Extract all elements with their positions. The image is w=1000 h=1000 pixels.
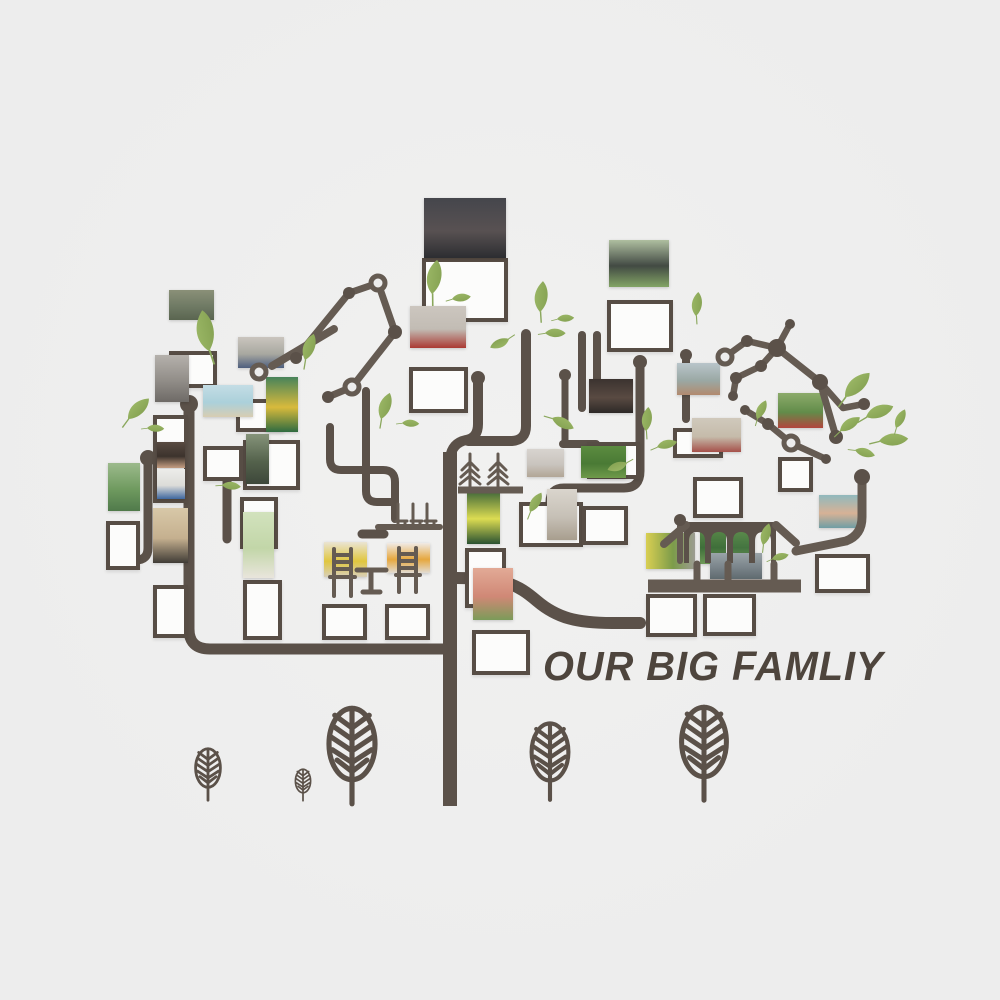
sapling-tree-icon [682,707,727,800]
sapling-tree-icon [196,749,221,800]
branch-node-dot [854,469,870,485]
branch-node-dot [785,319,795,329]
branch-node-dot [821,454,831,464]
leaf-icon [551,309,574,329]
branch-node-dot [741,335,753,347]
leaf-icon [141,418,164,439]
pavilion-branch-right [796,483,862,551]
mini-chairs [396,504,436,526]
branch-node-ring [371,276,385,290]
branch-node-dot [388,325,402,339]
leaf-icon [185,310,230,365]
branch-node-dot [812,374,828,390]
leaf-icon [538,321,566,346]
family-tree-wall-art: OUR BIG FAMLIY [0,0,1000,1000]
branch-node-dot [674,514,686,526]
leaf-icon [869,424,908,458]
branch-node-ring [345,380,359,394]
leaf-icon [682,292,712,325]
sapling-tree-icon [295,769,310,801]
table-silhouette [357,570,386,592]
leaf-icon [651,435,678,456]
chair-silhouette-2 [396,548,420,592]
leaf-icon [767,549,789,566]
constellation-left-b [328,283,395,397]
leaf-icon [632,407,662,440]
chair-silhouette-1 [330,549,355,596]
leaf-icon [413,259,457,306]
branch-node-dot [858,398,870,410]
branch-node-dot [343,287,355,299]
branch-node-dot [768,339,786,357]
leaf-icon [519,492,549,519]
branch-node-dot [829,430,843,444]
branch-node-dot [730,372,742,384]
leaf-icon [215,474,241,498]
branch-node-dot [290,352,302,364]
title-text: OUR BIG FAMLIY [543,643,884,690]
decor-overlay-layer [0,0,1000,1000]
twig-diagonal-left [272,329,334,366]
sapling-tree-icon [329,708,375,803]
branch-node-dot [740,405,750,415]
branch-node-ring [718,350,732,364]
branch-node-ring [252,365,266,379]
leaf-icon [885,409,913,435]
pine-tree-2 [488,454,508,487]
leaf-icon [544,406,574,439]
branch-node-dot [728,391,738,401]
sapling-tree-icon [532,723,569,799]
branch-node-dot [762,418,774,430]
leaf-icon [366,392,403,428]
branch-node-dot [322,391,334,403]
branch-node-ring [784,436,798,450]
leaf-icon [396,413,419,434]
leaf-icon [117,398,155,428]
pavilion-beam-right [776,525,796,543]
leaf-icon [522,281,561,323]
branch-node-dot [755,360,767,372]
leaf-icon [446,288,471,309]
pine-tree-1 [460,454,480,487]
leaf-icon [833,417,862,437]
leaf-icon [607,455,633,474]
leaf-icon [490,333,515,350]
constellation-right-b [733,348,777,396]
